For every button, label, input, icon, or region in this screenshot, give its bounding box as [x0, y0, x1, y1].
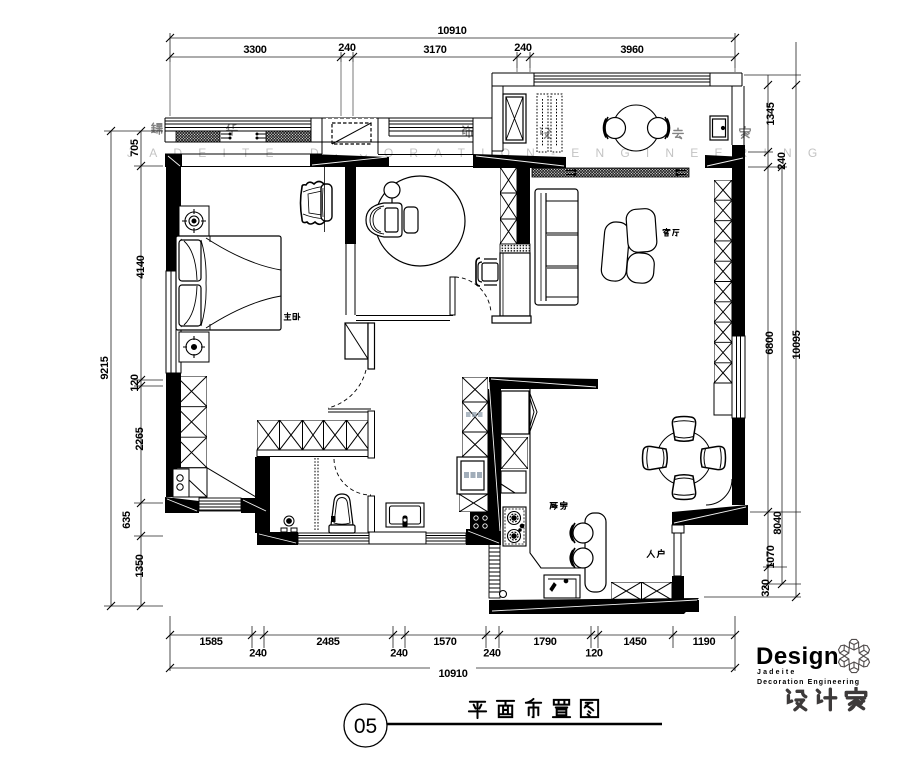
svg-text:120: 120: [129, 374, 141, 392]
svg-text:Design: Design: [756, 643, 839, 670]
svg-text:1345: 1345: [765, 102, 777, 125]
svg-text:240: 240: [249, 648, 267, 660]
svg-text:8040: 8040: [772, 511, 784, 534]
svg-text:Decoration Engineering: Decoration Engineering: [757, 679, 860, 686]
svg-text:240: 240: [776, 152, 788, 170]
svg-text:635: 635: [121, 511, 133, 529]
svg-text:120: 120: [585, 648, 603, 660]
svg-text:240: 240: [483, 648, 501, 660]
svg-text:05: 05: [354, 715, 377, 738]
svg-text:1585: 1585: [199, 636, 222, 648]
svg-text:3300: 3300: [243, 44, 266, 56]
svg-text:4140: 4140: [135, 255, 147, 278]
svg-text:9215: 9215: [99, 356, 111, 379]
svg-text:10910: 10910: [437, 25, 466, 37]
svg-text:6800: 6800: [764, 331, 776, 354]
svg-text:1790: 1790: [533, 636, 556, 648]
svg-text:3170: 3170: [423, 44, 446, 56]
svg-text:3960: 3960: [620, 44, 643, 56]
svg-text:1190: 1190: [693, 636, 716, 648]
svg-text:Jadeite: Jadeite: [757, 669, 797, 676]
svg-text:2485: 2485: [316, 636, 339, 648]
svg-text:240: 240: [514, 42, 532, 54]
svg-text:10095: 10095: [791, 330, 803, 359]
svg-text:240: 240: [338, 42, 356, 54]
svg-text:240: 240: [390, 648, 408, 660]
svg-text:1350: 1350: [134, 554, 146, 577]
svg-text:1070: 1070: [765, 545, 777, 568]
svg-text:1450: 1450: [623, 636, 646, 648]
svg-text:320: 320: [760, 579, 772, 597]
svg-text:705: 705: [129, 139, 141, 157]
svg-text:10910: 10910: [438, 668, 467, 680]
svg-text:1570: 1570: [433, 636, 456, 648]
svg-text:2265: 2265: [134, 427, 146, 450]
